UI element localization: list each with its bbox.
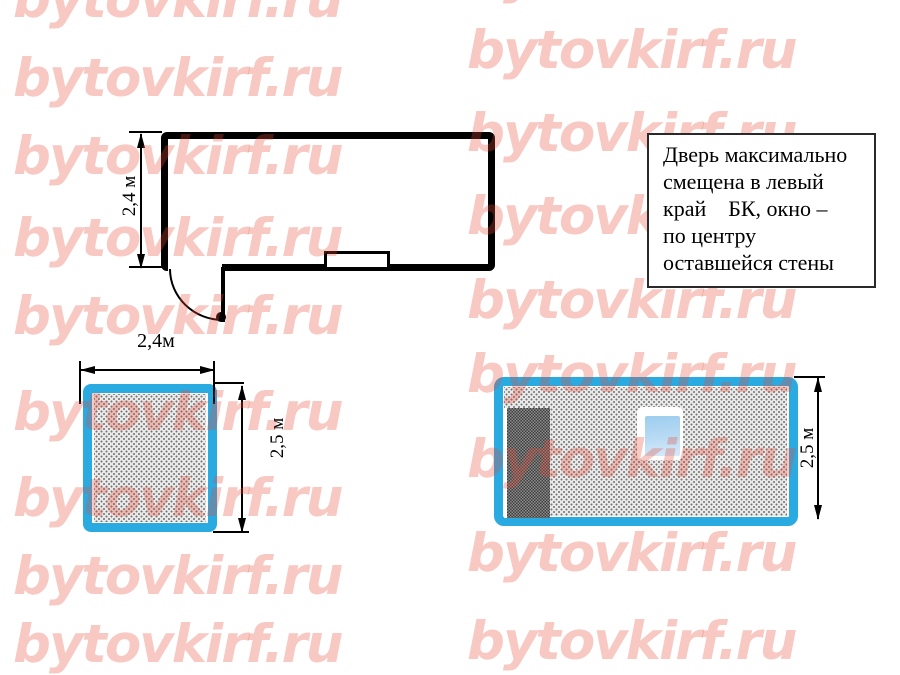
watermark-text: bytovkirf.ru (467, 24, 796, 77)
watermark-text: bytovkirf.ru (13, 52, 342, 105)
plan-dimension-tick-top (129, 131, 162, 133)
plan-dimension-tick-bottom (129, 266, 162, 268)
note-line: смещена в левый (663, 168, 868, 195)
note-box: Дверь максимально смещена в левый край Б… (647, 133, 876, 288)
watermark-text: bytovkirf.ru (13, 550, 342, 603)
plan-door-swing-arc (169, 269, 223, 321)
watermark-text: bytovkirf.ru (467, 0, 796, 1)
plan-window (324, 251, 390, 270)
plan-door-end-dot (216, 312, 226, 322)
large-elevation-height-label: 2,5 м (797, 413, 817, 483)
watermark-text: bytovkirf.ru (467, 615, 796, 668)
small-elevation-width-dimension-line (81, 369, 214, 371)
note-line: край БК, окно – (663, 195, 868, 222)
note-line: оставшейся стены (663, 249, 868, 276)
note-line: Дверь максимально (663, 141, 868, 168)
small-elevation-height-dimension-line (241, 386, 243, 532)
watermark-text: bytovkirf.ru (467, 527, 796, 580)
small-elevation-width-tick-left (79, 361, 81, 404)
plan-height-dimension-label: 2,4 м (119, 161, 139, 231)
drawing-page: 2,4 м Дверь максимально смещена в левый … (0, 0, 900, 675)
plan-height-dimension-line (140, 134, 142, 268)
small-elevation-wall-fill (94, 394, 206, 522)
large-elevation-window-glass (645, 416, 680, 456)
small-elevation-width-label: 2,4м (116, 330, 196, 352)
small-elevation-height-label: 2,5 м (267, 403, 287, 473)
watermark-text: bytovkirf.ru (13, 618, 342, 671)
note-line: по центру (663, 222, 868, 249)
watermark-text: bytovkirf.ru (13, 0, 342, 26)
large-elevation-door (504, 408, 550, 518)
small-elevation-height-tick-top (213, 382, 244, 384)
